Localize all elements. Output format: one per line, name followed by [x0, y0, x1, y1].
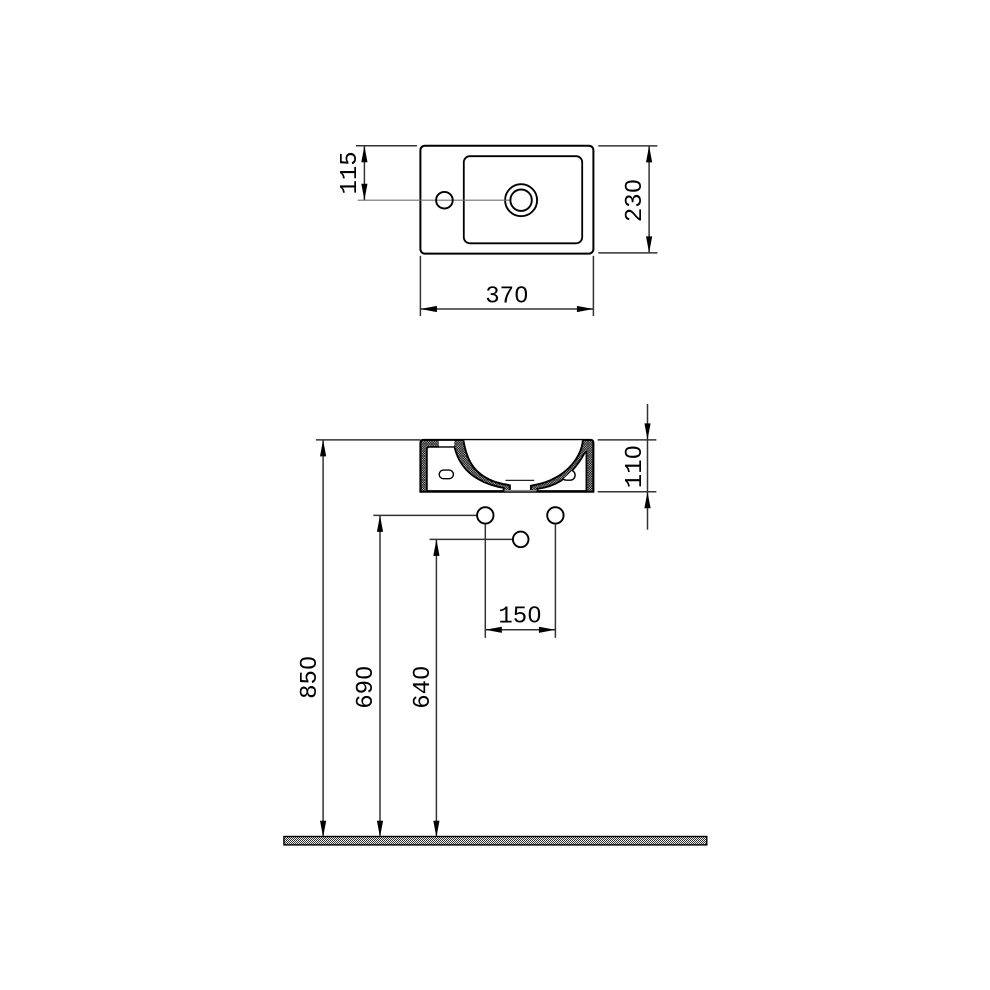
svg-text:690: 690 [353, 666, 380, 709]
svg-text:230: 230 [622, 179, 649, 222]
svg-text:115: 115 [337, 151, 364, 194]
svg-text:110: 110 [622, 445, 649, 488]
svg-text:850: 850 [297, 656, 324, 699]
svg-text:370: 370 [485, 284, 528, 311]
svg-text:640: 640 [410, 666, 437, 709]
